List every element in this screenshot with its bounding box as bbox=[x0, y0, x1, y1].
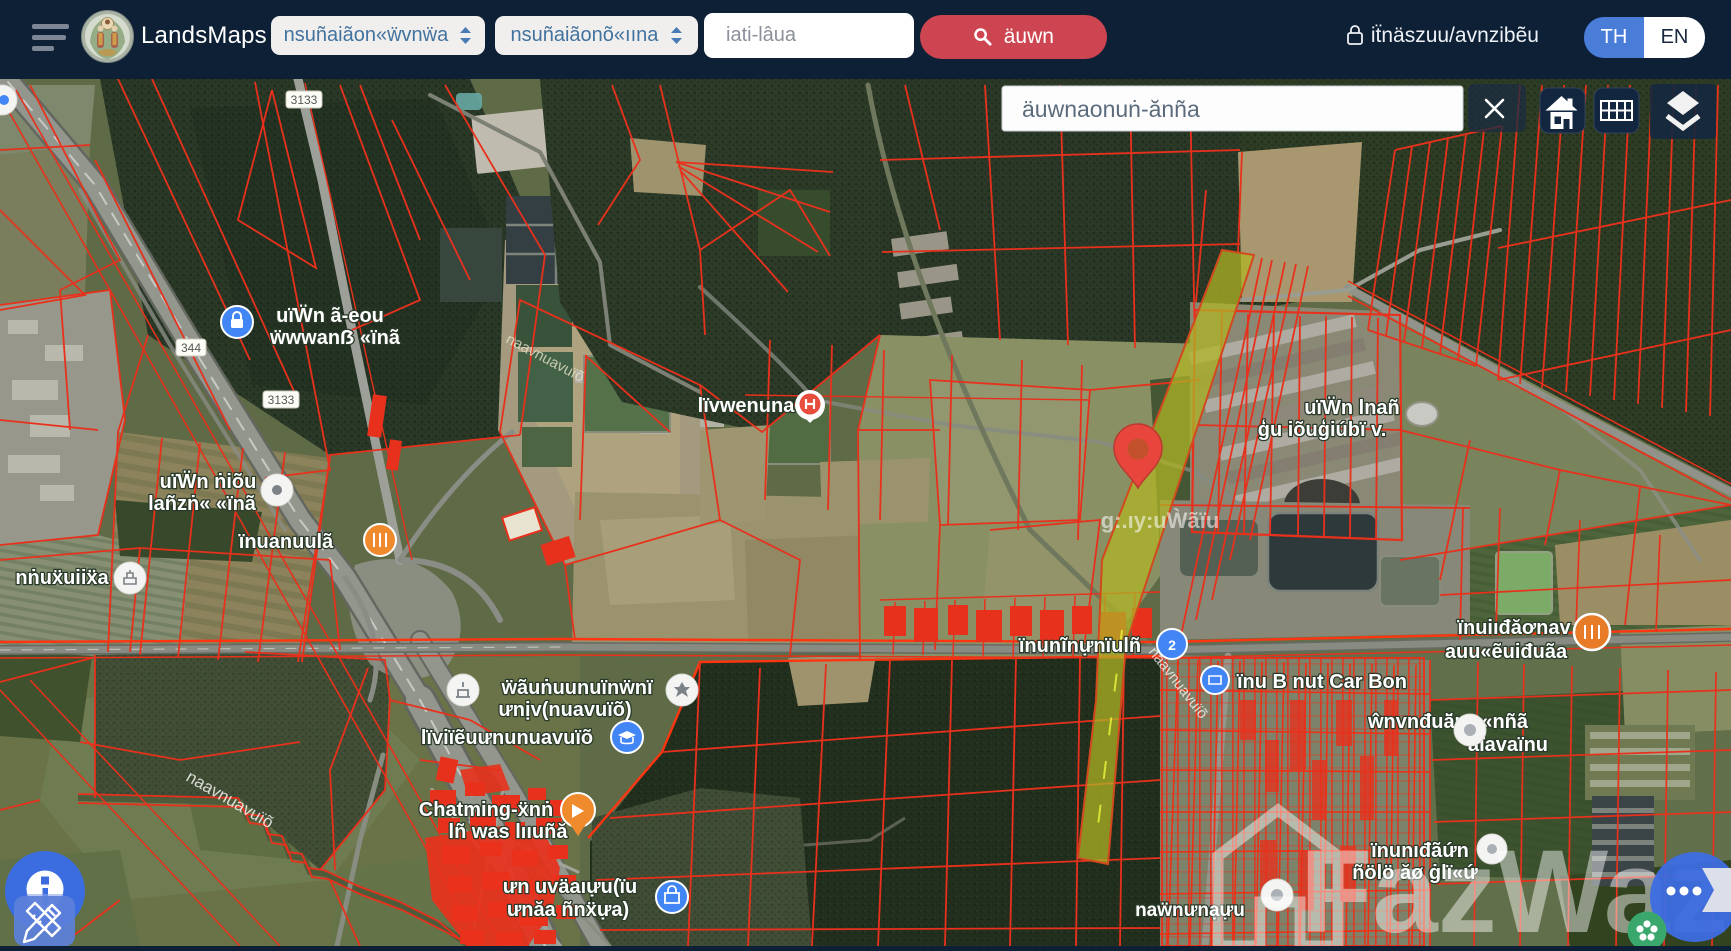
svg-text:ẅwwanẞ «ïnã: ẅwwanẞ «ïnã bbox=[269, 327, 401, 349]
svg-text:auu«ẽuiđuãa: auu«ẽuiđuãa bbox=[1445, 641, 1568, 663]
svg-text:ưn uväaıựu(ïu: ưn uväaıựu(ïu bbox=[503, 876, 638, 898]
svg-text:lañzṅ« «ïnã: lañzṅ« «ïnã bbox=[148, 493, 257, 515]
svg-text:2: 2 bbox=[1168, 637, 1176, 653]
svg-text:uïẄn ã-eou: uïẄn ã-eou bbox=[276, 304, 384, 327]
svg-text:uïẄn lnañ: uïẄn lnañ bbox=[1304, 396, 1400, 419]
svg-text:ïnuanuulã: ïnuanuulã bbox=[238, 531, 334, 553]
svg-text:naẅnưnạựu: naẅnưnạựu bbox=[1135, 900, 1245, 921]
svg-text:ẅãuṅuunuïnẅnï: ẅãuṅuunuïnẅnï bbox=[500, 677, 653, 699]
svg-text:lñ was lııuñă: lñ was lııuñă bbox=[449, 821, 569, 843]
svg-text:lïviïẽuưnunuavuïõ: lïviïẽuưnunuavuïõ bbox=[421, 727, 593, 749]
svg-text:ưnăa ñnẍựa): ưnăa ñnẍựa) bbox=[507, 899, 629, 921]
svg-text:uïẄn ṅiõu: uïẄn ṅiõu bbox=[160, 470, 257, 493]
svg-text:ïnu B nut Car Bon: ïnu B nut Car Bon bbox=[1236, 671, 1407, 693]
svg-text:ģu iõuģiúbï v.: ģu iõuģiúbï v. bbox=[1258, 419, 1387, 441]
svg-text:ưnịv(nuavuïõ): ưnịv(nuavuïõ) bbox=[498, 699, 631, 721]
svg-text:344: 344 bbox=[181, 341, 201, 355]
svg-text:nṅuẍuiiẍ̈a: nṅuẍuiiẍ̈a bbox=[15, 567, 109, 589]
svg-text:äuwnaonuṅ-ănña: äuwnaonuṅ-ănña bbox=[1022, 96, 1200, 122]
svg-text:g:.ıy:uẀãïu: g:.ıy:uẀãïu bbox=[1101, 508, 1220, 533]
svg-text:3133: 3133 bbox=[268, 393, 295, 407]
svg-text:ŵnvnđuă̈ưu«nñã: ŵnvnđuă̈ưu«nñã bbox=[1367, 711, 1529, 733]
svg-text:ïnunĩnựnïulñ: ïnunĩnựnïulñ bbox=[1018, 635, 1141, 657]
svg-text:3133: 3133 bbox=[291, 93, 318, 107]
svg-text:lïvwenuna: lïvwenuna bbox=[698, 395, 796, 417]
svg-text:ïnuiıđăơnav: ïnuiıđăơnav bbox=[1456, 617, 1571, 639]
svg-text:Chatming-ẍnṅ: Chatming-ẍnṅ bbox=[419, 799, 553, 821]
